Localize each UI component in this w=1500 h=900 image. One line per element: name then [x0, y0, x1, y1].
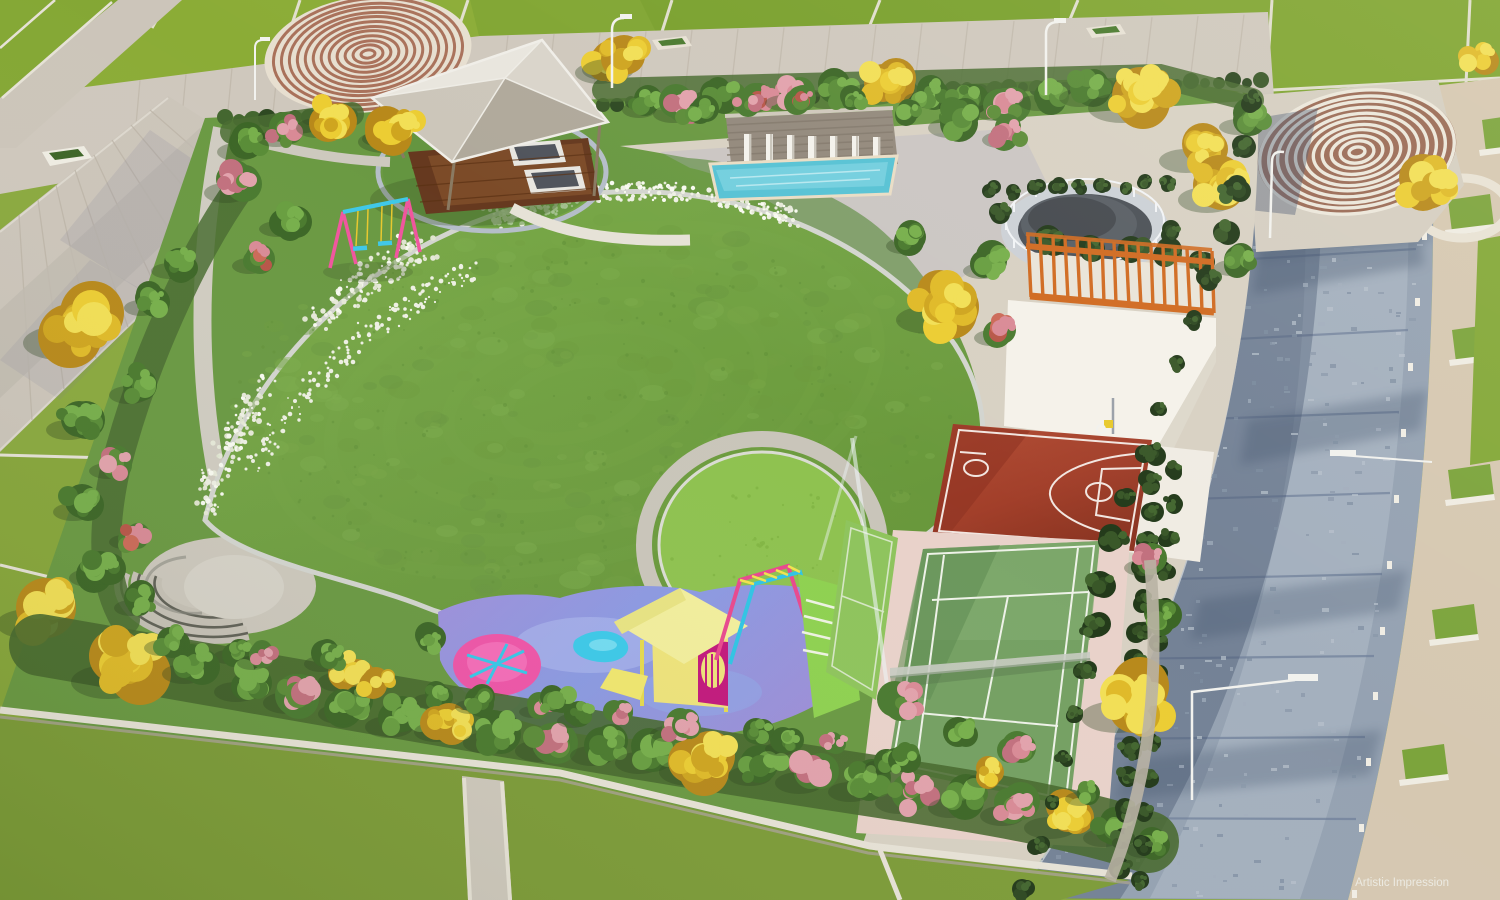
- svg-text:Artistic Impression: Artistic Impression: [1355, 877, 1449, 889]
